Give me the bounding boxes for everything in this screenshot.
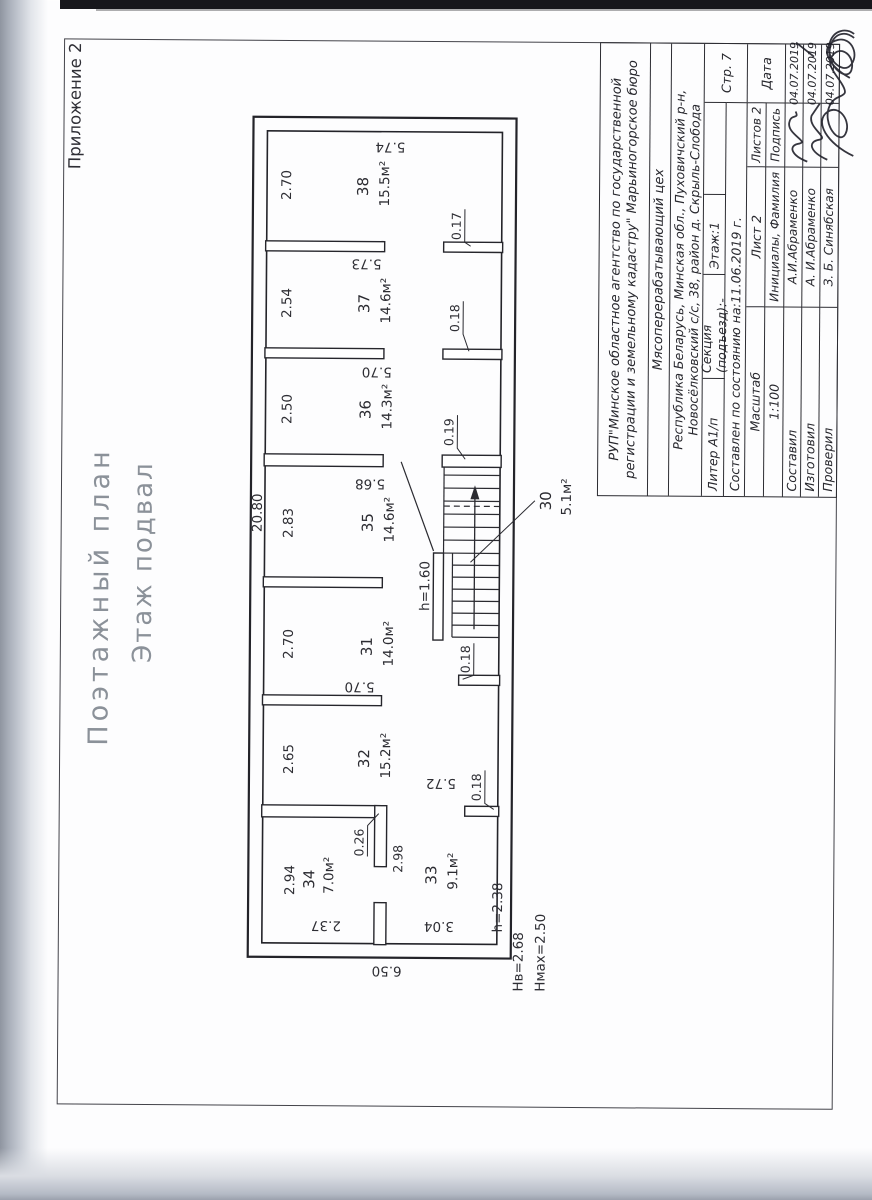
scanned-page: Приложение 2 Поэтажный план Этаж подвал bbox=[0, 0, 872, 1200]
signature-scribbles bbox=[789, 30, 855, 162]
scan-edge-top bbox=[60, 0, 872, 9]
scan-edge-left bbox=[0, 0, 48, 1200]
signature-overlay bbox=[0, 0, 872, 1200]
scanned-sheet: Приложение 2 Поэтажный план Этаж подвал bbox=[0, 0, 872, 1200]
scan-edge-bottom bbox=[0, 1148, 872, 1200]
scan-edge-top-shadow bbox=[96, 9, 872, 11]
